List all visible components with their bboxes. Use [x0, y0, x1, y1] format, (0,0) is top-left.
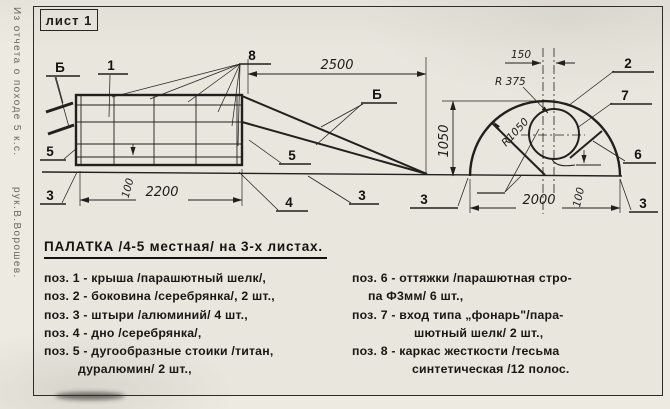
parts-list-left-column: поз. 1 - крыша /парашютный шелк/, поз. 2…: [44, 271, 344, 381]
parts-list-item: поз. 5 - дугообразные стоики /титан,: [44, 344, 344, 362]
parts-list-title: ПАЛАТКА /4-5 местная/ на 3-х листах.: [44, 239, 327, 259]
parts-list-item-continuation: шютный шелк/ 2 шт.,: [352, 326, 662, 344]
pos-label-4: 4: [285, 195, 293, 210]
dim-offset: 150: [511, 49, 531, 61]
pos-label-2: 2: [624, 56, 632, 71]
pos-label-7: 7: [621, 88, 629, 103]
dim-body-length: 2200: [145, 185, 178, 200]
parts-list-item: поз. 1 - крыша /парашютный шелк/,: [44, 271, 344, 289]
pos-label-3-left: 3: [46, 188, 54, 203]
parts-list-item: поз. 3 - штыри /алюминий/ 4 шт.,: [44, 308, 344, 326]
dim-total-length: 2500: [320, 58, 353, 73]
pos-label-5-mid: 5: [288, 148, 296, 163]
pos-label-3-center: 3: [420, 192, 428, 207]
parts-list-item-continuation: дуралюмин/ 2 шт.,: [44, 362, 344, 380]
leader-lines: [55, 64, 631, 210]
parts-list-item: поз. 7 - вход типа „фонарь"/пара-: [352, 308, 662, 326]
dim-clearance-side: 100: [120, 177, 137, 200]
scanned-drawing-page: Из отчета о походе 5 к.с. рук.В.Ворошев.…: [0, 0, 670, 409]
parts-list-item: поз. 4 - дно /серебрянка/,: [44, 326, 344, 344]
parts-list-item: поз. 8 - каркас жесткости /тесьма: [352, 344, 662, 362]
dim-radius-big: R1050: [499, 116, 531, 149]
ground-line: [42, 172, 622, 176]
pos-label-3-mid: 3: [358, 188, 366, 203]
pos-label-6: 6: [634, 147, 642, 162]
parts-list-item: поз. 2 - боковина /серебрянка/, 2 шт.,: [44, 289, 344, 307]
pos-label-3-right: 3: [639, 196, 647, 211]
view-label-b-mid: Б: [372, 87, 382, 102]
parts-list-item-continuation: синтетическая /12 полос.: [352, 362, 662, 380]
parts-list-item: поз. 6 - оттяжки /парашютная стро-: [352, 271, 662, 289]
pos-label-8: 8: [248, 48, 256, 63]
dim-radius-small: R 375: [495, 76, 526, 88]
view-label-b-left: Б: [55, 60, 65, 75]
parts-list-right-column: поз. 6 - оттяжки /парашютная стро- па Ф3…: [352, 271, 662, 381]
scan-smudge: [55, 392, 125, 400]
pos-label-5-left: 5: [46, 144, 54, 159]
dim-width: 2000: [522, 193, 555, 208]
pos-label-1: 1: [107, 58, 115, 73]
dim-clearance-end: 100: [571, 186, 587, 208]
dim-height: 1050: [437, 124, 452, 157]
frame-grid-lines: [76, 95, 242, 165]
parts-list-item-continuation: па Ф3мм/ 6 шт.,: [352, 289, 662, 307]
side-view-body: [46, 95, 427, 174]
